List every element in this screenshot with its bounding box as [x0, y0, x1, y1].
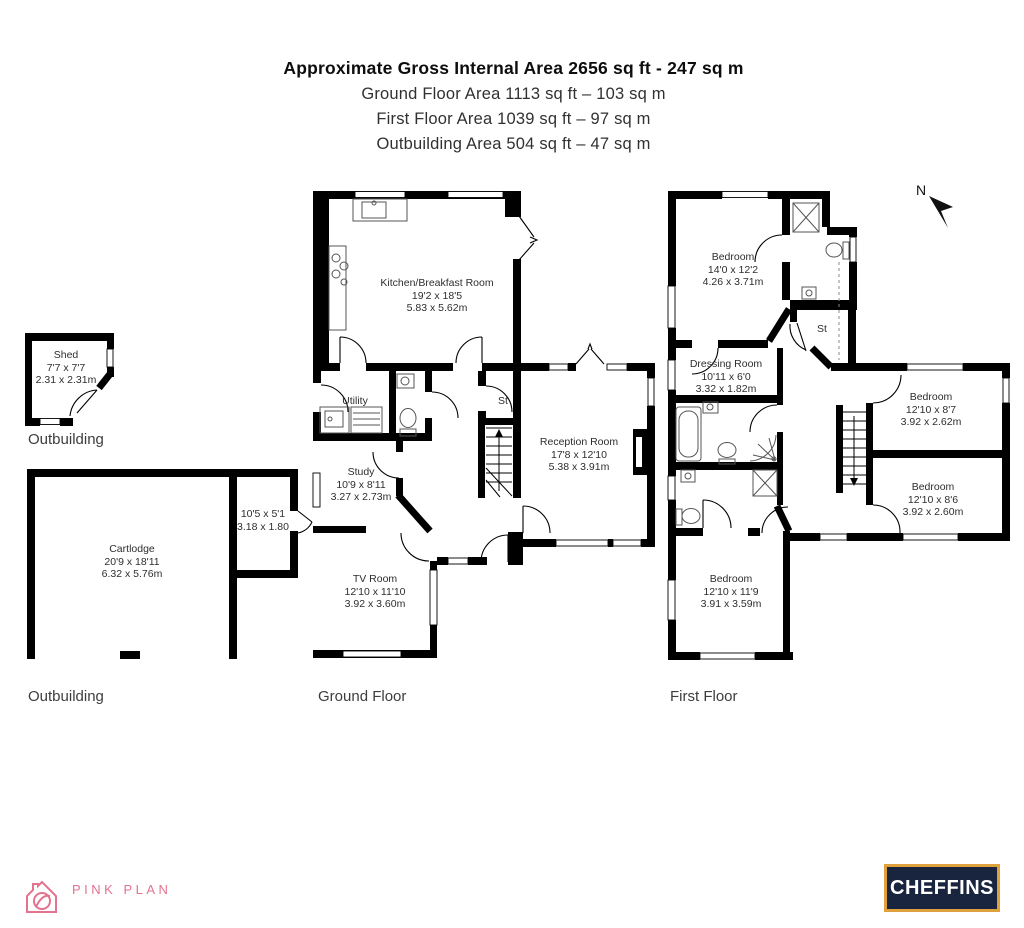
room-dims-imperial: 12'10 x 11'9 [701, 586, 762, 599]
room-dims-metric: 3.92 x 2.62m [901, 416, 962, 429]
room-name: Shed [36, 349, 97, 362]
study-corner-wall [398, 495, 430, 531]
room-label-cartlodge: Cartlodge 20'9 x 18'11 6.32 x 5.76m [102, 543, 163, 581]
room-label-bedroom-2: Bedroom 12'10 x 8'7 3.92 x 2.62m [901, 391, 962, 429]
cartlodge-plan [27, 469, 312, 659]
room-dims-metric: 3.92 x 3.60m [344, 598, 405, 611]
room-dims-imperial: 7'7 x 7'7 [36, 362, 97, 375]
gross-area-title: Approximate Gross Internal Area 2656 sq … [0, 58, 1024, 79]
room-dims-metric: 3.91 x 3.59m [701, 598, 762, 611]
room-dims-imperial: 14'0 x 12'2 [703, 264, 764, 277]
north-arrow-icon [929, 196, 953, 228]
room-name: Reception Room [540, 436, 618, 449]
north-label: N [916, 182, 926, 198]
room-label-bedroom-4: Bedroom 12'10 x 11'9 3.91 x 3.59m [701, 573, 762, 611]
caption-cartlodge-outbuilding: Outbuilding [28, 688, 104, 705]
room-label-cartlodge-store: 10'5 x 5'1 3.18 x 1.80 [237, 508, 289, 533]
room-label-store-ground: St [498, 395, 508, 408]
room-dims-imperial: 10'11 x 6'0 [690, 371, 762, 384]
room-label-bedroom-3: Bedroom 12'10 x 8'6 3.92 x 2.60m [903, 481, 964, 519]
room-name: Dressing Room [690, 358, 762, 371]
room-label-reception: Reception Room 17'8 x 12'10 5.38 x 3.91m [540, 436, 618, 474]
room-dims-imperial: 20'9 x 18'11 [102, 556, 163, 569]
utility-fixtures [320, 407, 382, 433]
room-name: Bedroom [901, 391, 962, 404]
room-label-shed: Shed 7'7 x 7'7 2.31 x 2.31m [36, 349, 97, 387]
room-name: Study [331, 466, 392, 479]
room-dims-metric: 3.27 x 2.73m [331, 491, 392, 504]
room-label-dressing: Dressing Room 10'11 x 6'0 3.32 x 1.82m [690, 358, 762, 396]
room-label-study: Study 10'9 x 8'11 3.27 x 2.73m [331, 466, 392, 504]
room-name: Utility [342, 395, 368, 408]
room-name: Bedroom [701, 573, 762, 586]
room-label-kitchen: Kitchen/Breakfast Room 19'2 x 18'5 5.83 … [380, 277, 493, 315]
room-dims-imperial: 17'8 x 12'10 [540, 449, 618, 462]
bathroom-fixtures [676, 402, 776, 464]
pink-plan-wordmark: PINK PLAN [72, 882, 171, 897]
room-dims-imperial: 12'10 x 8'6 [903, 494, 964, 507]
room-dims-imperial: 12'10 x 8'7 [901, 404, 962, 417]
room-dims-metric: 5.38 x 3.91m [540, 461, 618, 474]
room-dims-imperial: 10'5 x 5'1 [237, 508, 289, 521]
caption-first-floor: First Floor [670, 688, 738, 705]
room-name: Kitchen/Breakfast Room [380, 277, 493, 290]
bedroom-angled-wall [777, 506, 789, 531]
room-dims-metric: 3.32 x 1.82m [690, 383, 762, 396]
ground-staircase [486, 428, 512, 497]
room-name: St [498, 395, 508, 408]
room-dims-metric: 3.18 x 1.80 [237, 521, 289, 534]
shed-door [70, 390, 97, 416]
cartlodge-store-door [298, 511, 312, 533]
caption-shed-outbuilding: Outbuilding [28, 431, 104, 448]
first-staircase [843, 412, 866, 486]
room-name: Bedroom [903, 481, 964, 494]
outbuilding-area: Outbuilding Area 504 sq ft – 47 sq m [0, 135, 1024, 154]
room-label-bedroom-1: Bedroom 14'0 x 12'2 4.26 x 3.71m [703, 251, 764, 289]
ensuite-wc-fixtures [793, 203, 849, 299]
room-label-tv-room: TV Room 12'10 x 11'10 3.92 x 3.60m [344, 573, 405, 611]
room-dims-imperial: 19'2 x 18'5 [380, 290, 493, 303]
room-dims-metric: 5.83 x 5.62m [380, 302, 493, 315]
first-floor-area: First Floor Area 1039 sq ft – 97 sq m [0, 110, 1024, 129]
cloakroom-fixtures [397, 374, 416, 436]
caption-ground-floor: Ground Floor [318, 688, 406, 705]
room-label-utility: Utility [342, 395, 368, 408]
pink-plan-logo: PINK PLAN [22, 876, 171, 897]
ground-floor-area: Ground Floor Area 1113 sq ft – 103 sq m [0, 85, 1024, 104]
room-name: St [817, 323, 827, 336]
room-name: Cartlodge [102, 543, 163, 556]
room-dims-metric: 6.32 x 5.76m [102, 568, 163, 581]
room-dims-imperial: 10'9 x 8'11 [331, 479, 392, 492]
shed-corner-wall [99, 374, 110, 388]
room-name: TV Room [344, 573, 405, 586]
cheffins-wordmark: CHEFFINS [890, 877, 994, 900]
room-label-store-first: St [817, 323, 827, 336]
room-name: Bedroom [703, 251, 764, 264]
floorplan-page: Approximate Gross Internal Area 2656 sq … [0, 0, 1024, 928]
fireplace-icon [636, 437, 642, 467]
room-dims-metric: 3.92 x 2.60m [903, 506, 964, 519]
store-angled-wall [812, 348, 831, 367]
cheffins-logo: CHEFFINS [884, 864, 1000, 912]
title-block: Approximate Gross Internal Area 2656 sq … [0, 58, 1024, 154]
landing-angled-wall [769, 309, 789, 341]
room-dims-metric: 4.26 x 3.71m [703, 276, 764, 289]
room-dims-metric: 2.31 x 2.31m [36, 374, 97, 387]
shower-room-fixtures [676, 470, 777, 525]
ground-floor-doors [321, 216, 604, 562]
room-dims-imperial: 12'10 x 11'10 [344, 586, 405, 599]
